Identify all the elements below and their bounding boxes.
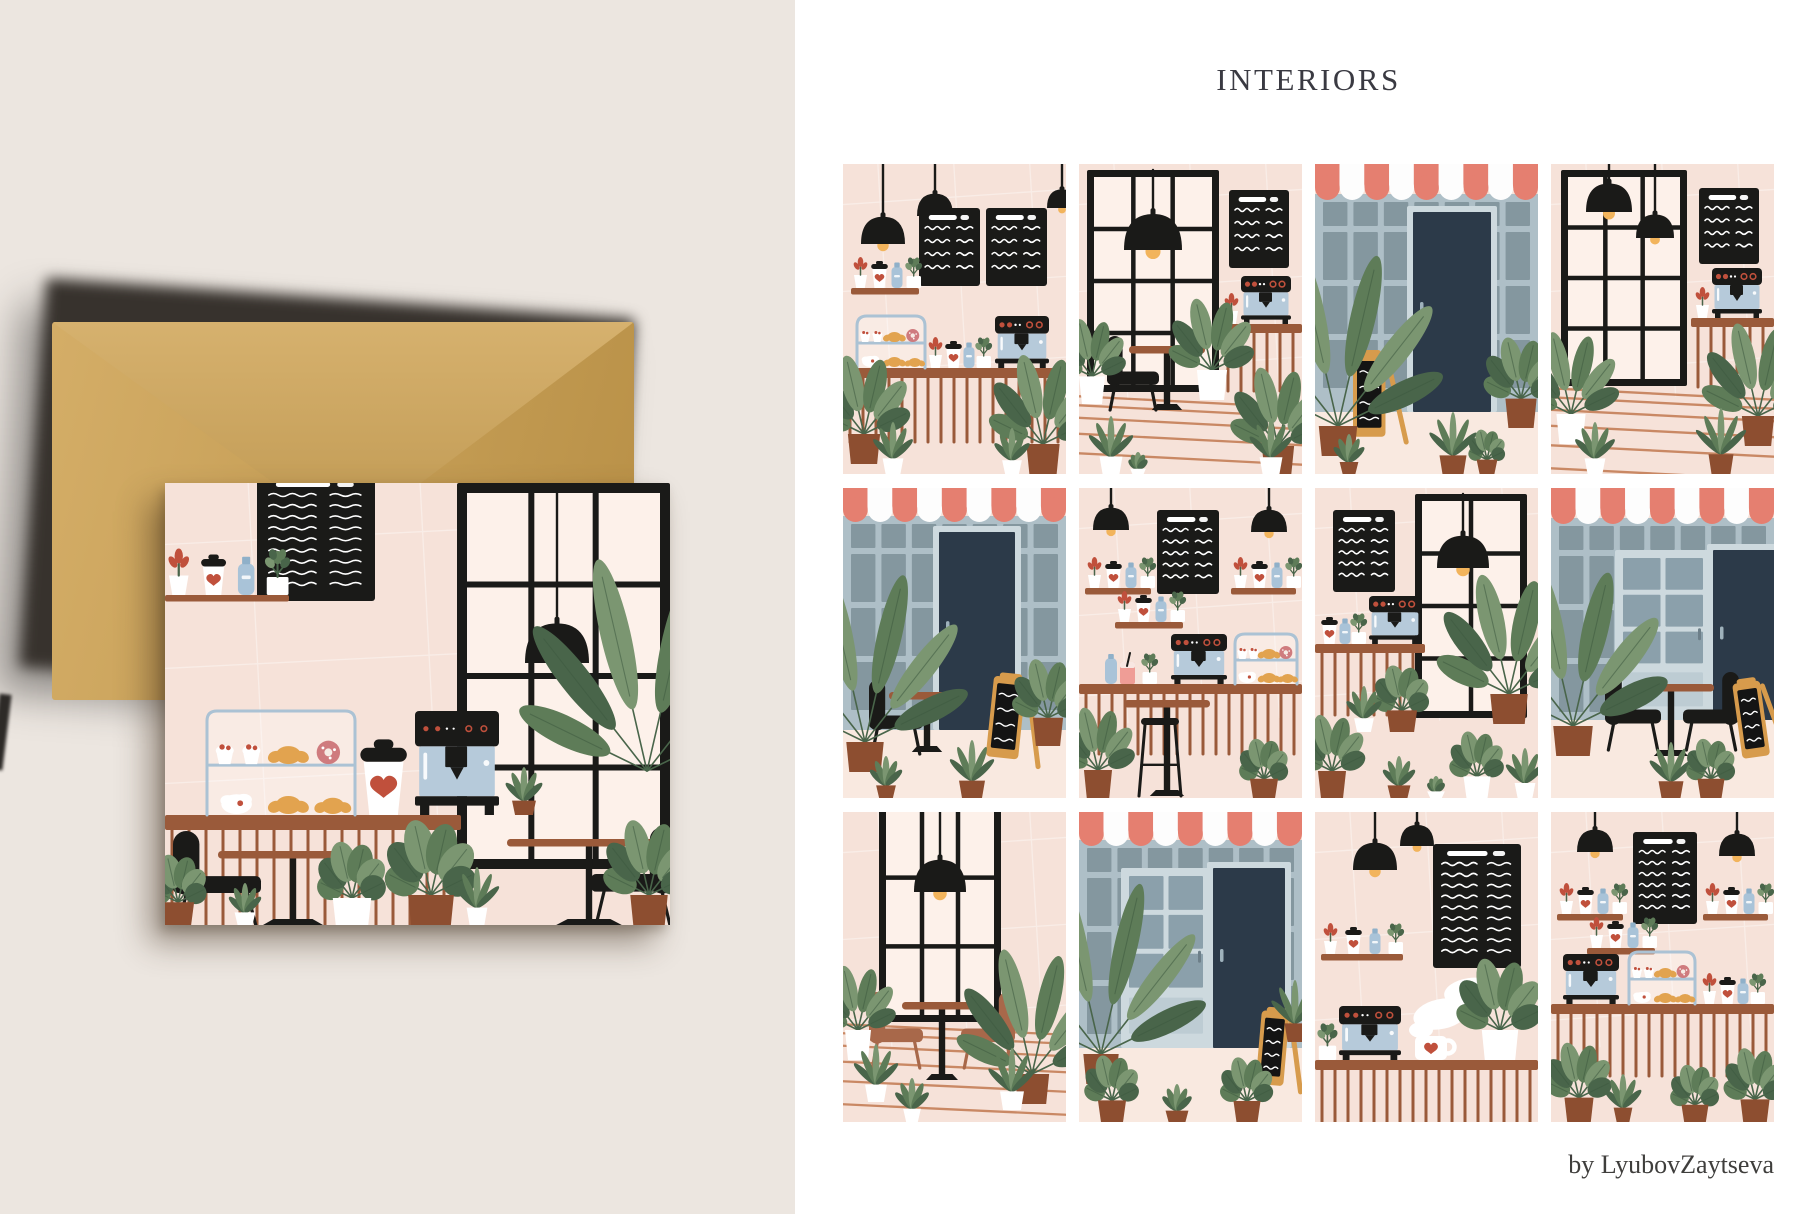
interior-tile-8-storefront-glass-door-table <box>1551 488 1774 798</box>
interior-illustration <box>1551 488 1774 798</box>
interior-tile-12-menu-shelves-counter-pastry <box>1551 812 1774 1122</box>
page-title: INTERIORS <box>843 62 1774 98</box>
interior-tile-3-storefront-awning-sign <box>1315 164 1538 474</box>
interior-tile-1-counter-menu-boards <box>843 164 1066 474</box>
interior-illustration <box>1079 488 1302 798</box>
interior-illustration <box>843 488 1066 798</box>
edge-paper-sliver <box>0 694 12 771</box>
interior-illustration <box>1551 812 1774 1122</box>
postcard <box>165 483 670 925</box>
catalog-panel: INTERIORS by LyubovZaytseva <box>795 0 1820 1214</box>
interior-illustration <box>1079 164 1302 474</box>
interior-tile-2-window-table-espresso <box>1079 164 1302 474</box>
mockup-panel <box>0 0 795 1214</box>
interior-illustration <box>1315 164 1538 474</box>
illustration-showcase: INTERIORS by LyubovZaytseva <box>0 0 1820 1214</box>
interior-tile-6-menu-shelves-bar-stool <box>1079 488 1302 798</box>
interiors-grid <box>843 164 1774 1122</box>
interior-tile-11-menu-espresso-steaming-mug <box>1315 812 1538 1122</box>
interior-illustration <box>843 164 1066 474</box>
author-credit: by LyubovZaytseva <box>843 1150 1774 1180</box>
interior-tile-5-storefront-table-sign <box>843 488 1066 798</box>
interior-illustration <box>1551 164 1774 474</box>
interior-tile-9-window-two-chairs <box>843 812 1066 1122</box>
postcard-illustration <box>165 483 670 925</box>
interior-tile-10-storefront-glass-door-sign <box>1079 812 1302 1122</box>
interior-illustration <box>1315 488 1538 798</box>
interior-illustration <box>843 812 1066 1122</box>
interior-tile-7-menu-espresso-window <box>1315 488 1538 798</box>
interior-illustration <box>1315 812 1538 1122</box>
interior-tile-4-window-lamps-espresso <box>1551 164 1774 474</box>
interior-illustration <box>1079 812 1302 1122</box>
